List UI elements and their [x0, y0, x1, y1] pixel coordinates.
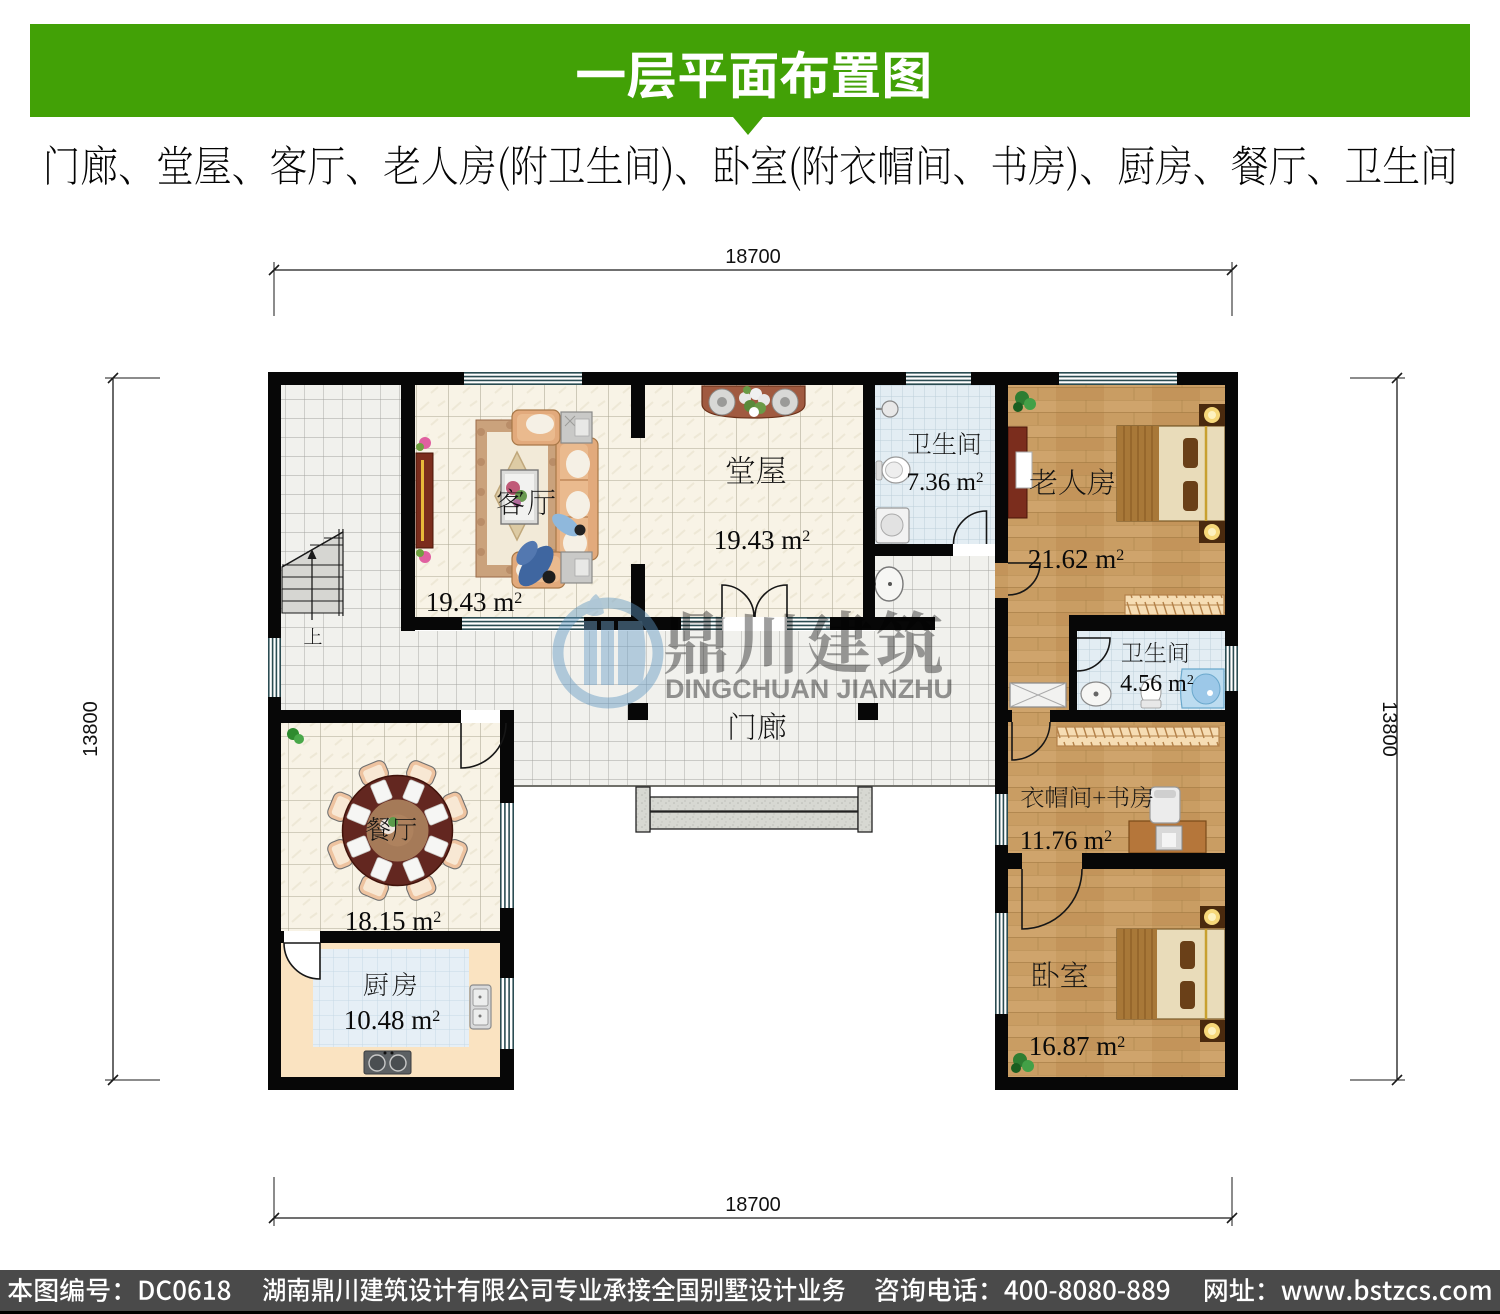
svg-text:18700: 18700 [725, 246, 781, 268]
svg-text:13800: 13800 [1378, 701, 1400, 757]
svg-text:DINGCHUAN JIANZHU: DINGCHUAN JIANZHU [665, 674, 953, 704]
svg-text:18700: 18700 [725, 1194, 781, 1216]
svg-text:16.87 m2: 16.87 m2 [1029, 1031, 1126, 1061]
svg-text:13800: 13800 [80, 701, 102, 757]
svg-text:18.15 m2: 18.15 m2 [345, 906, 442, 936]
svg-text:11.76 m2: 11.76 m2 [1020, 826, 1112, 855]
svg-text:10.48 m2: 10.48 m2 [344, 1005, 441, 1035]
svg-text:19.43 m2: 19.43 m2 [426, 587, 523, 617]
svg-text:21.62 m2: 21.62 m2 [1028, 544, 1125, 574]
svg-text:19.43 m2: 19.43 m2 [714, 525, 811, 555]
svg-text:7.36 m2: 7.36 m2 [907, 469, 984, 496]
svg-text:4.56 m2: 4.56 m2 [1120, 671, 1194, 697]
